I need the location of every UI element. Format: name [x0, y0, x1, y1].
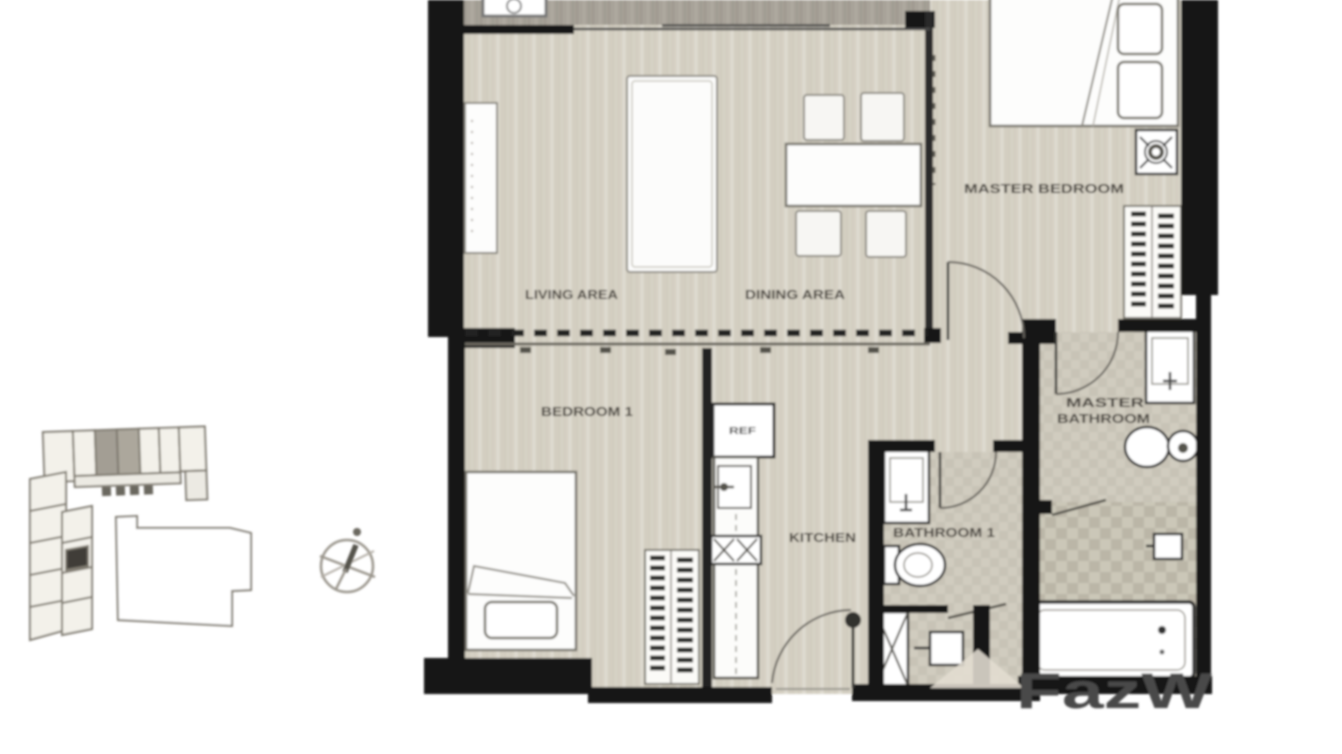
svg-text:MASTER: MASTER: [1066, 396, 1144, 410]
svg-text:BATHROOM 1: BATHROOM 1: [893, 526, 995, 540]
svg-text:LIVING AREA: LIVING AREA: [525, 288, 618, 302]
svg-text:BEDROOM 1: BEDROOM 1: [541, 405, 633, 419]
svg-text:DINING AREA: DINING AREA: [745, 288, 845, 302]
svg-text:FazW: FazW: [1016, 663, 1213, 719]
svg-text:BATHROOM: BATHROOM: [1057, 412, 1150, 426]
svg-text:REF: REF: [729, 426, 756, 437]
svg-text:KITCHEN: KITCHEN: [789, 531, 856, 545]
svg-text:MASTER BEDROOM: MASTER BEDROOM: [964, 182, 1124, 196]
